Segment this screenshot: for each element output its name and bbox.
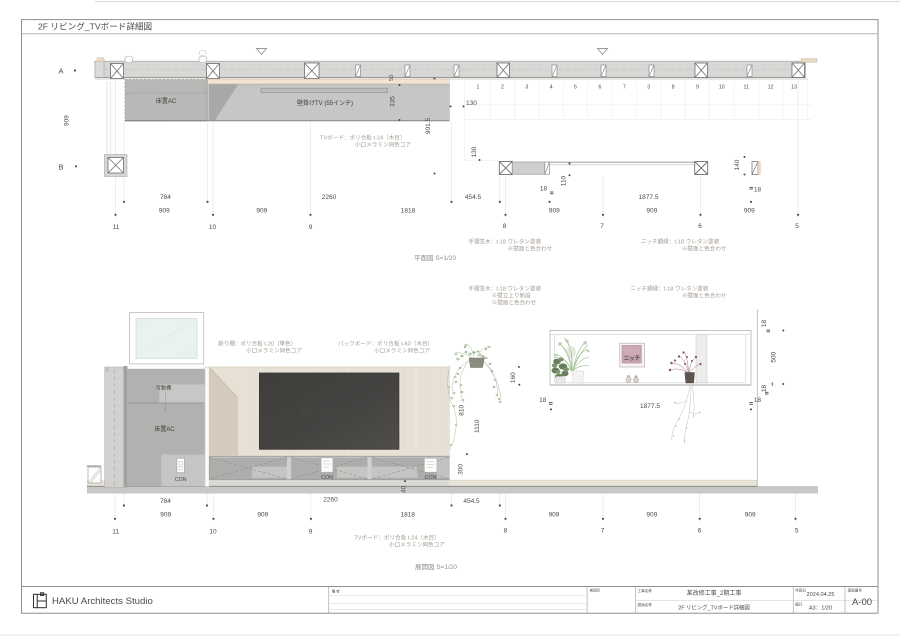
- svg-text:ニッチ額縁：t-18 ウレタン塗装: ニッチ額縁：t-18 ウレタン塗装: [641, 238, 720, 246]
- svg-text:140: 140: [734, 159, 741, 170]
- svg-text:6: 6: [698, 223, 702, 230]
- svg-text:備 考: 備 考: [332, 589, 341, 594]
- svg-text:160: 160: [510, 372, 517, 383]
- svg-text:TVボード：ポリ合板 t-24（木目）: TVボード：ポリ合板 t-24（木目）: [354, 534, 439, 542]
- svg-text:小口メラミン同色コア: 小口メラミン同色コア: [355, 141, 411, 149]
- svg-text:1877.5: 1877.5: [639, 194, 659, 201]
- svg-text:1818: 1818: [400, 512, 415, 519]
- svg-text:図面番号: 図面番号: [848, 588, 863, 593]
- svg-text:909: 909: [745, 512, 756, 519]
- svg-text:5: 5: [574, 85, 577, 91]
- svg-text:小口メラミン同色コア: 小口メラミン同色コア: [374, 347, 430, 355]
- svg-text:A: A: [59, 67, 64, 76]
- svg-text:壁掛けTV (55インチ): 壁掛けTV (55インチ): [297, 99, 353, 107]
- svg-text:※壁面と色合わせ: ※壁面と色合わせ: [492, 299, 537, 307]
- svg-text:8: 8: [503, 223, 507, 230]
- svg-text:可動棚: 可動棚: [156, 384, 172, 392]
- svg-text:CON: CON: [175, 477, 187, 483]
- svg-text:7: 7: [601, 528, 605, 535]
- svg-text:7: 7: [600, 223, 604, 230]
- svg-text:300: 300: [458, 464, 465, 475]
- svg-text:HAKU Architects Studio: HAKU Architects Studio: [52, 596, 153, 607]
- svg-text:909: 909: [549, 208, 560, 215]
- svg-text:18: 18: [754, 187, 762, 194]
- svg-text:8: 8: [504, 528, 508, 535]
- svg-text:ニッチ額縁：t-18 ウレタン塗装: ニッチ額縁：t-18 ウレタン塗装: [630, 285, 709, 293]
- svg-text:2F リビング_TVボード詳細図: 2F リビング_TVボード詳細図: [38, 21, 152, 32]
- svg-text:5: 5: [795, 223, 799, 230]
- svg-text:壁掛けTV (55インチ): 壁掛けTV (55インチ): [301, 409, 357, 417]
- svg-text:2260: 2260: [322, 194, 337, 201]
- svg-text:3: 3: [647, 85, 650, 91]
- svg-text:18: 18: [761, 320, 768, 328]
- svg-text:展開図 S=1/20: 展開図 S=1/20: [415, 563, 457, 571]
- svg-text:9: 9: [696, 85, 699, 91]
- svg-text:810: 810: [458, 404, 465, 415]
- svg-text:909: 909: [64, 115, 71, 126]
- svg-text:A3：1/20: A3：1/20: [809, 606, 832, 612]
- svg-text:909: 909: [646, 512, 657, 519]
- svg-text:18: 18: [761, 385, 768, 393]
- svg-text:909: 909: [256, 208, 267, 215]
- svg-text:909: 909: [744, 208, 755, 215]
- svg-text:335: 335: [390, 96, 397, 107]
- svg-text:小口メラミン同色コア: 小口メラミン同色コア: [246, 347, 302, 355]
- svg-text:909: 909: [159, 208, 170, 215]
- svg-text:11: 11: [744, 85, 749, 91]
- svg-text:1: 1: [477, 85, 480, 91]
- svg-text:5: 5: [795, 528, 799, 535]
- svg-text:12: 12: [768, 85, 774, 91]
- svg-text:11: 11: [113, 224, 120, 231]
- svg-text:※壁立上り新設: ※壁立上り新設: [492, 292, 532, 300]
- svg-text:130: 130: [466, 100, 477, 107]
- svg-text:10: 10: [719, 85, 725, 91]
- svg-text:小口メラミン同色コア: 小口メラミン同色コア: [389, 541, 445, 549]
- svg-text:1110: 1110: [474, 419, 481, 433]
- svg-text:1818: 1818: [401, 208, 416, 215]
- svg-text:飾り棚：ポリ合板 t-20（単色）: 飾り棚：ポリ合板 t-20（単色）: [218, 340, 296, 348]
- svg-text:50: 50: [389, 75, 395, 81]
- svg-text:床置AC: 床置AC: [154, 425, 175, 433]
- svg-text:784: 784: [160, 498, 171, 505]
- svg-text:909: 909: [257, 512, 268, 519]
- svg-text:TVボード：ポリ合板 t-24（木目）: TVボード：ポリ合板 t-24（木目）: [320, 134, 405, 142]
- svg-text:※壁面と色合わせ: ※壁面と色合わせ: [682, 292, 727, 300]
- svg-text:縮尺: 縮尺: [795, 602, 803, 607]
- svg-text:ニッチ: ニッチ: [624, 355, 641, 362]
- svg-text:1877.5: 1877.5: [640, 403, 660, 410]
- svg-text:7: 7: [623, 85, 626, 91]
- svg-text:10: 10: [209, 224, 217, 231]
- svg-text:※壁面と色合わせ: ※壁面と色合わせ: [682, 245, 727, 253]
- svg-text:10: 10: [209, 529, 217, 536]
- svg-text:6: 6: [598, 85, 601, 91]
- svg-text:9: 9: [309, 529, 313, 536]
- svg-text:11: 11: [112, 529, 119, 536]
- svg-text:3: 3: [525, 85, 528, 91]
- svg-text:A-00: A-00: [852, 597, 872, 608]
- svg-text:手摺笠木：t-18 ウレタン塗装: 手摺笠木：t-18 ウレタン塗装: [468, 238, 541, 246]
- svg-text:8: 8: [672, 85, 675, 91]
- svg-text:図面名称: 図面名称: [638, 602, 653, 607]
- svg-text:2260: 2260: [323, 497, 338, 504]
- svg-text:2F リビング_TVボード詳細図: 2F リビング_TVボード詳細図: [678, 604, 750, 612]
- svg-text:手摺笠木：t-18 ウレタン塗装: 手摺笠木：t-18 ウレタン塗装: [468, 285, 541, 293]
- svg-text:CON: CON: [425, 475, 437, 481]
- svg-text:40: 40: [401, 485, 408, 493]
- svg-text:500: 500: [771, 351, 778, 362]
- svg-text:18: 18: [754, 397, 762, 404]
- svg-text:検図印: 検図印: [590, 588, 601, 593]
- svg-text:バックボード：ポリ合板 t-60（木目）: バックボード：ポリ合板 t-60（木目）: [338, 340, 433, 348]
- svg-text:4: 4: [550, 85, 553, 91]
- svg-text:平面図 S=1/20: 平面図 S=1/20: [414, 254, 456, 262]
- svg-text:13: 13: [791, 85, 797, 91]
- svg-text:18: 18: [539, 397, 547, 404]
- svg-text:454.5: 454.5: [463, 498, 480, 505]
- svg-text:18: 18: [540, 186, 548, 193]
- svg-text:909: 909: [646, 208, 657, 215]
- svg-text:110: 110: [561, 175, 568, 186]
- svg-text:作図日: 作図日: [795, 588, 806, 593]
- svg-text:CON: CON: [321, 475, 333, 481]
- svg-text:工事名称: 工事名称: [638, 588, 653, 593]
- svg-text:130: 130: [471, 146, 478, 157]
- svg-text:454.5: 454.5: [465, 194, 482, 201]
- svg-text:2: 2: [501, 85, 504, 91]
- svg-text:2024.04.25: 2024.04.25: [807, 592, 835, 598]
- svg-text:某改修工事_2期工事: 某改修工事_2期工事: [687, 589, 742, 597]
- svg-text:901.5: 901.5: [425, 117, 432, 134]
- svg-text:床置AC: 床置AC: [156, 97, 177, 105]
- svg-text:784: 784: [160, 194, 171, 201]
- svg-text:※壁面と色合わせ: ※壁面と色合わせ: [508, 245, 553, 253]
- svg-text:B: B: [59, 163, 64, 172]
- svg-text:6: 6: [698, 528, 702, 535]
- svg-text:909: 909: [549, 512, 560, 519]
- svg-text:9: 9: [309, 224, 313, 231]
- svg-text:909: 909: [160, 512, 171, 519]
